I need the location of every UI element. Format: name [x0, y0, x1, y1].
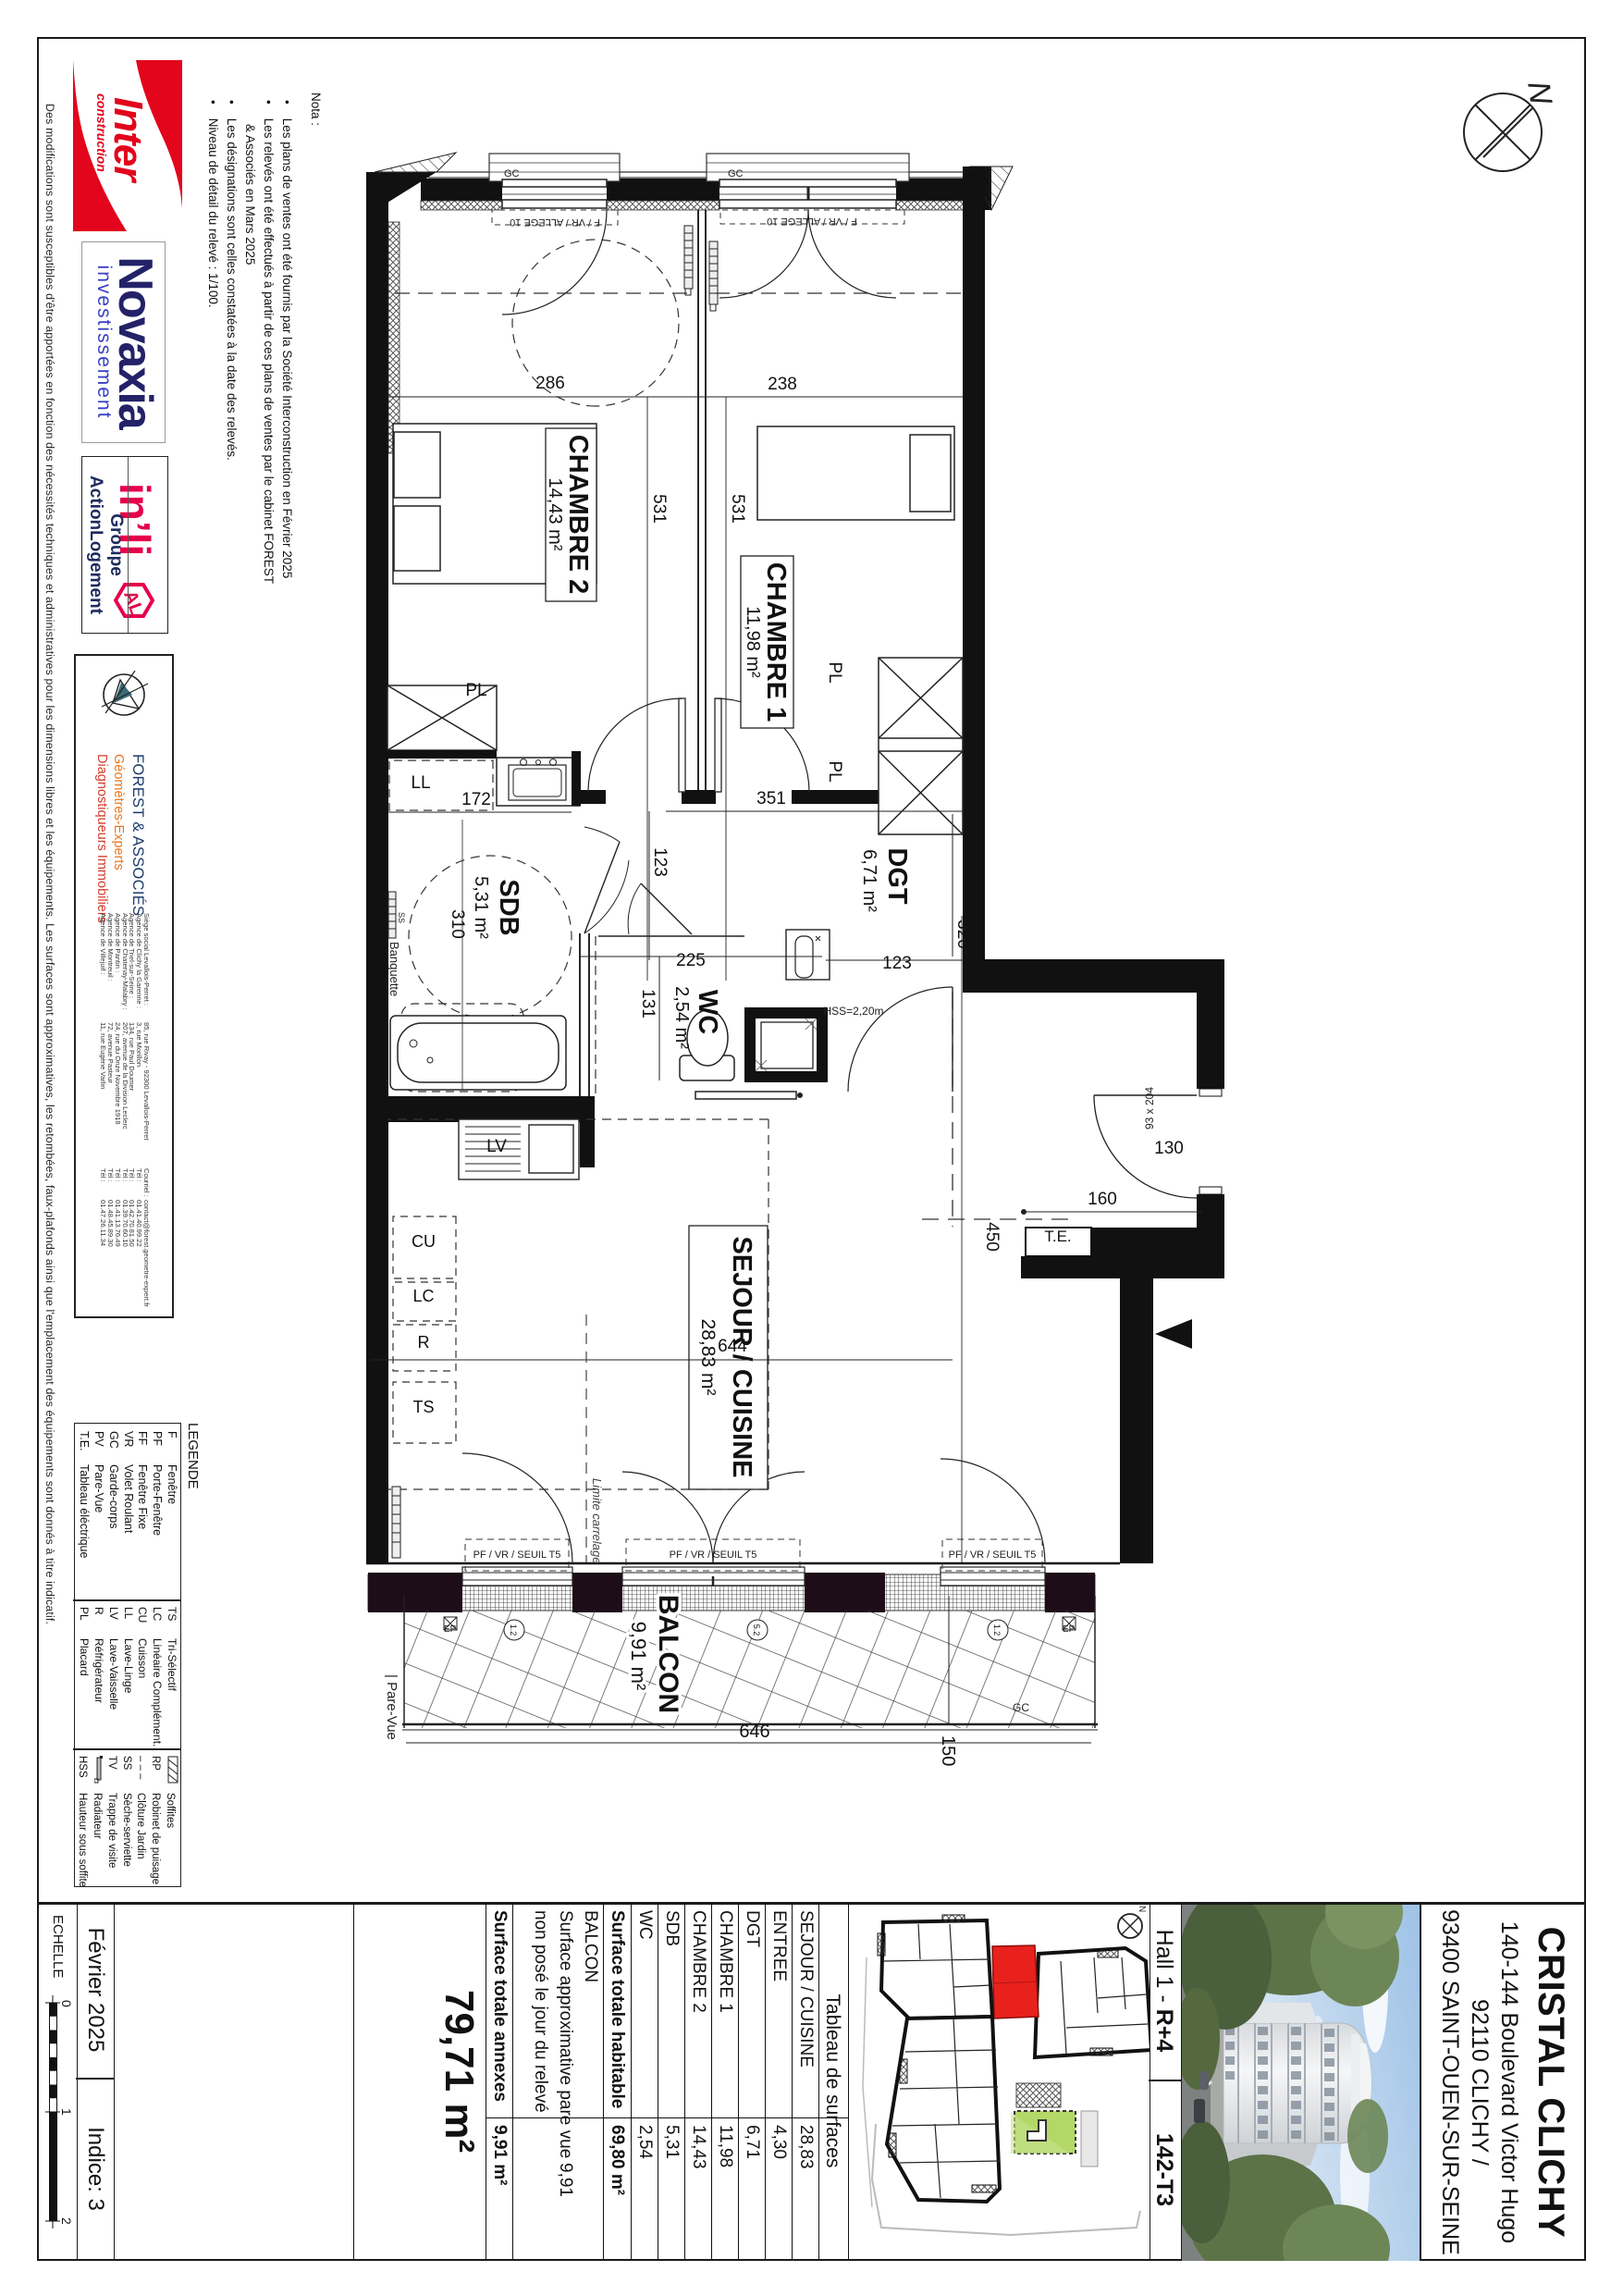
- svg-text:DGT: DGT: [882, 847, 912, 905]
- svg-text:GC: GC: [1013, 1701, 1029, 1714]
- svg-text:6,71 m²: 6,71 m²: [859, 849, 879, 912]
- svg-text:N: N: [1137, 1906, 1147, 1912]
- svg-text:531: 531: [728, 494, 747, 524]
- svg-text:1.2: 1.2: [992, 1624, 1002, 1636]
- svg-text:93 x 204: 93 x 204: [1143, 1087, 1156, 1129]
- svg-text:5,31 m²: 5,31 m²: [471, 876, 491, 939]
- svg-text:GC: GC: [504, 168, 520, 179]
- svg-text:320: 320: [953, 920, 973, 949]
- svg-text:GC: GC: [728, 168, 744, 179]
- svg-text:150: 150: [938, 1735, 958, 1766]
- svg-text:R: R: [418, 1333, 430, 1352]
- svg-text:286: 286: [535, 374, 565, 393]
- svg-text:Banquette: Banquette: [387, 942, 401, 996]
- svg-text:N: N: [1520, 80, 1558, 107]
- svg-text:PL: PL: [825, 661, 844, 683]
- svg-text:PF / VR / SEUIL T5: PF / VR / SEUIL T5: [473, 1549, 561, 1561]
- svg-text:T.E.: T.E.: [1044, 1228, 1071, 1245]
- svg-text:LL: LL: [411, 773, 430, 793]
- svg-text:CHAMBRE 1: CHAMBRE 1: [761, 562, 791, 722]
- svg-text:Inter: Inter: [105, 97, 151, 184]
- svg-text:BALCON: BALCON: [653, 1595, 683, 1713]
- svg-text:0: 0: [59, 2000, 73, 2007]
- svg-text:160: 160: [1088, 1190, 1117, 1209]
- svg-text:PL: PL: [825, 760, 844, 782]
- svg-text:351: 351: [756, 789, 786, 809]
- svg-text:EP: EP: [444, 1624, 457, 1635]
- svg-text:F / VR / ALLEGE 10: F / VR / ALLEGE 10: [767, 216, 857, 227]
- svg-text:SDB: SDB: [494, 879, 523, 935]
- svg-text:646: 646: [739, 1722, 769, 1742]
- svg-text:644: 644: [718, 1337, 747, 1356]
- svg-text:TS: TS: [412, 1398, 434, 1416]
- svg-text:225: 225: [676, 951, 706, 970]
- svg-text:9,91 m²: 9,91 m²: [627, 1622, 650, 1691]
- svg-text:450: 450: [982, 1222, 1002, 1252]
- svg-text:238: 238: [768, 375, 797, 394]
- svg-text:LV: LV: [486, 1137, 507, 1156]
- svg-text:28,83 m²: 28,83 m²: [697, 1319, 719, 1396]
- svg-text:2: 2: [59, 2217, 73, 2225]
- svg-text:EP: EP: [1063, 1624, 1076, 1635]
- svg-text:123: 123: [650, 847, 670, 877]
- svg-text:130: 130: [1154, 1139, 1184, 1158]
- svg-text:HSS=2,20m: HSS=2,20m: [823, 1005, 883, 1018]
- svg-text:14,43 m²: 14,43 m²: [545, 478, 565, 551]
- svg-text:CU: CU: [412, 1232, 436, 1251]
- svg-text:CHAMBRE 2: CHAMBRE 2: [563, 435, 593, 594]
- svg-text:SS: SS: [397, 912, 406, 923]
- svg-text:2,54 m²: 2,54 m²: [671, 986, 692, 1049]
- svg-text:PF / VR / SEUIL T5: PF / VR / SEUIL T5: [670, 1549, 757, 1561]
- svg-text:F / VR / ALLEGE 10: F / VR / ALLEGE 10: [510, 216, 600, 228]
- svg-text:11,98 m²: 11,98 m²: [743, 606, 763, 678]
- svg-text:LC: LC: [412, 1287, 434, 1305]
- svg-text:| Pare-Vue: | Pare-Vue: [384, 1674, 400, 1740]
- svg-text:1: 1: [59, 2108, 73, 2116]
- svg-text:531: 531: [649, 494, 669, 524]
- svg-text:1.2: 1.2: [509, 1624, 518, 1636]
- svg-text:5.2: 5.2: [752, 1624, 761, 1636]
- svg-text:WC: WC: [693, 990, 722, 1034]
- svg-text:Limite carrelage: Limite carrelage: [590, 1478, 604, 1564]
- svg-text:123: 123: [882, 954, 912, 973]
- svg-text:SEJOUR / CUISINE: SEJOUR / CUISINE: [727, 1236, 756, 1477]
- svg-text:172: 172: [461, 790, 491, 809]
- svg-text:construction: construction: [94, 93, 109, 172]
- svg-text:131: 131: [638, 989, 658, 1018]
- svg-text:310: 310: [448, 909, 467, 939]
- svg-text:PL: PL: [465, 681, 486, 700]
